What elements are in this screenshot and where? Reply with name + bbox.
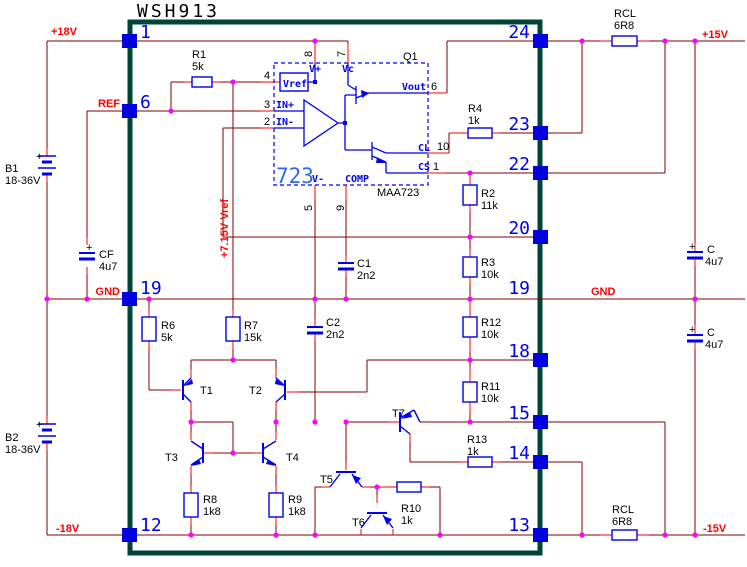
svg-text:1k: 1k [401,515,413,527]
resistor-r4: R4 1k [468,103,492,138]
net-label-minus18v: -18V [56,523,80,535]
net-label-gnd-right: GND [591,286,616,298]
resistor-r1: R1 5k [192,49,212,87]
net-label-minus15v: -15V [703,523,727,535]
pad-pin-23 [533,126,548,140]
resistor-r7: R7 15k [226,317,262,344]
pad-pin-14 [533,455,548,469]
pad-pin-13 [533,528,548,542]
ic-723-label: 723 [276,164,314,188]
pad-pin-1 [122,34,137,48]
plus-mark: + [689,241,695,253]
label-vplus: V+ [309,64,321,75]
opamp-symbol [304,100,338,146]
svg-text:15k: 15k [244,332,262,344]
vref-box-label: Vref [283,79,307,90]
svg-text:T1: T1 [200,385,213,397]
pad-pin-12 [122,528,137,542]
svg-text:R11: R11 [481,381,500,393]
schematic-canvas: WSH913 +18V REF GND -18V +15V GND -15V +… [0,0,747,567]
svg-text:C2: C2 [326,317,340,329]
pin-number-18: 18 [508,341,530,362]
pin-number-19-left: 19 [140,278,162,299]
t6-arrow-icon [383,516,392,525]
svg-text:C: C [707,327,715,339]
label-vout: Vout [402,82,426,93]
pad-pin-20 [533,230,548,244]
capacitor-cf: + CF 4u7 [79,242,117,273]
ic-pin-5: 5 [303,205,315,211]
t2-arrow-icon [275,379,284,386]
svg-text:T2: T2 [249,385,262,397]
limit-transistor-arrow-icon [376,157,386,163]
svg-text:1k8: 1k8 [288,506,306,518]
transistor-t7: T7 [392,408,420,434]
resistor-r2: R2 11k [463,185,498,212]
plus-mark: + [86,242,92,254]
resistor-r3: R3 10k [463,257,499,281]
plus-mark: + [689,324,695,336]
svg-text:CF: CF [99,249,114,261]
ic-pin-8: 8 [303,51,315,57]
resistor-r10: R10 1k [397,482,421,527]
svg-text:R12: R12 [481,317,501,329]
net-label-plus15v: +15V [702,29,729,41]
resistor-r11: R11 10k [463,381,500,405]
svg-text:5k: 5k [161,332,173,344]
pin-number-24: 24 [508,22,530,43]
resistor-rcl-bottom: RCL 6R8 [612,504,637,540]
svg-text:R2: R2 [481,188,495,200]
svg-text:R3: R3 [481,257,495,269]
svg-text:4u7: 4u7 [705,256,723,268]
svg-text:10k: 10k [481,393,499,405]
value: 5k [192,61,204,73]
transistor-t2: T2 [249,378,285,402]
pin-number-23: 23 [508,114,530,135]
resistors: R1 5k R4 1k R2 11k R3 10k R12 10k R11 10… [142,8,637,540]
net-label-ref: REF [98,98,120,110]
plus-mark: + [36,151,42,163]
circuit-schematic: WSH913 +18V REF GND -18V +15V GND -15V +… [0,0,747,567]
pin-number-20: 20 [508,218,530,239]
svg-text:10k: 10k [481,329,499,341]
ic-pin-6: 6 [431,81,437,93]
label-cs: CS [418,162,430,173]
pin-number-14: 14 [508,443,530,464]
label-comp: COMP [345,174,369,185]
svg-text:1k: 1k [467,446,479,458]
battery-b1: + B1 18-36V [5,151,56,187]
svg-text:6R8: 6R8 [614,20,634,32]
resistor-r6: R6 5k [142,317,175,344]
svg-text:R7: R7 [244,320,258,332]
capacitor-c1: C1 2n2 [338,258,375,282]
svg-text:RCL: RCL [614,8,636,20]
capacitor-c-bottom: + C 4u7 [687,324,723,351]
svg-text:11k: 11k [481,200,498,212]
pin-number-13: 13 [508,515,530,536]
svg-text:T3: T3 [165,452,178,464]
svg-text:R10: R10 [401,503,421,515]
svg-text:2n2: 2n2 [326,329,344,341]
svg-text:18-36V: 18-36V [5,444,41,456]
resistor-r9: R9 1k8 [269,493,306,518]
svg-text:4u7: 4u7 [99,261,117,273]
ic-part-number: MAA723 [377,187,419,199]
pad-pin-6 [122,104,137,118]
svg-text:R9: R9 [288,494,302,506]
svg-text:RCL: RCL [612,504,634,516]
pin-number-6: 6 [140,92,151,113]
svg-text:4u7: 4u7 [705,339,723,351]
transistor-t6: T6 [352,513,393,529]
svg-text:C: C [707,244,715,256]
svg-text:B2: B2 [5,432,18,444]
pin-number-15: 15 [508,403,530,424]
svg-text:B1: B1 [5,163,18,175]
svg-text:T5: T5 [320,474,333,486]
ic-pin-4: 4 [264,70,270,82]
svg-text:C1: C1 [357,258,371,270]
capacitor-c-top: + C 4u7 [687,241,723,268]
transistor-t4: T4 [263,441,299,466]
svg-text:R4: R4 [468,103,482,115]
svg-text:10k: 10k [481,269,499,281]
resistor-r8: R8 1k8 [184,493,221,518]
svg-text:T4: T4 [286,452,299,464]
svg-text:T7: T7 [392,408,405,420]
ic-pin-9: 9 [335,205,347,211]
resistor-r13: R13 1k [467,434,492,467]
regulator-723: Vref V+ Vc Vout IN+ IN- V- COMP CL CS 72… [264,51,449,211]
svg-text:R8: R8 [203,494,217,506]
svg-text:1k8: 1k8 [203,506,221,518]
pad-pin-18 [533,353,548,367]
svg-text:6R8: 6R8 [612,516,632,528]
q1-label: Q1 [403,51,418,63]
svg-text:R13: R13 [467,434,487,446]
net-label-vref-rail: +7.15V Vref [219,199,231,258]
label-vc: Vc [342,64,354,75]
t5-arrow-icon [352,475,361,484]
ref: R1 [192,49,206,61]
pad-pin-22 [533,166,548,180]
pin-number-1: 1 [140,22,151,43]
ic-pin-1: 1 [433,161,439,173]
net-label-gnd-left: GND [96,286,121,298]
ic-pin-10: 10 [437,141,449,153]
battery-b2: + B2 18-36V [5,419,56,456]
svg-text:T6: T6 [352,517,365,529]
pin-number-12: 12 [140,515,162,536]
plus-mark: + [36,419,42,431]
svg-text:2n2: 2n2 [357,270,375,282]
capacitors: C1 2n2 C2 2n2 + CF 4u7 + C 4u7 + C 4u7 [79,241,723,351]
pad-pin-15 [533,415,548,429]
ic-pin-2: 2 [264,116,270,128]
pad-pin-19 [122,292,137,306]
svg-text:R6: R6 [161,320,175,332]
svg-text:18-36V: 18-36V [5,175,41,187]
ic-pin-3: 3 [264,99,270,111]
svg-text:1k: 1k [468,115,480,127]
transistor-t5: T5 [320,472,362,487]
pad-pin-24 [533,34,548,48]
transistor-t1: T1 [183,378,213,402]
label-cl: CL [418,143,430,154]
resistor-rcl-top: RCL 6R8 [612,8,637,46]
pin-number-22: 22 [508,154,530,175]
transistor-t3: T3 [165,441,203,466]
ic-pin-7: 7 [336,51,348,57]
resistor-r12: R12 10k [463,317,501,341]
net-label-plus18v: +18V [51,26,78,38]
label-in-plus: IN+ [276,100,294,111]
label-in-minus: IN- [276,117,294,128]
capacitor-c2: C2 2n2 [307,317,344,341]
pin-number-19-right: 19 [508,278,530,299]
page-title: WSH913 [137,1,220,22]
